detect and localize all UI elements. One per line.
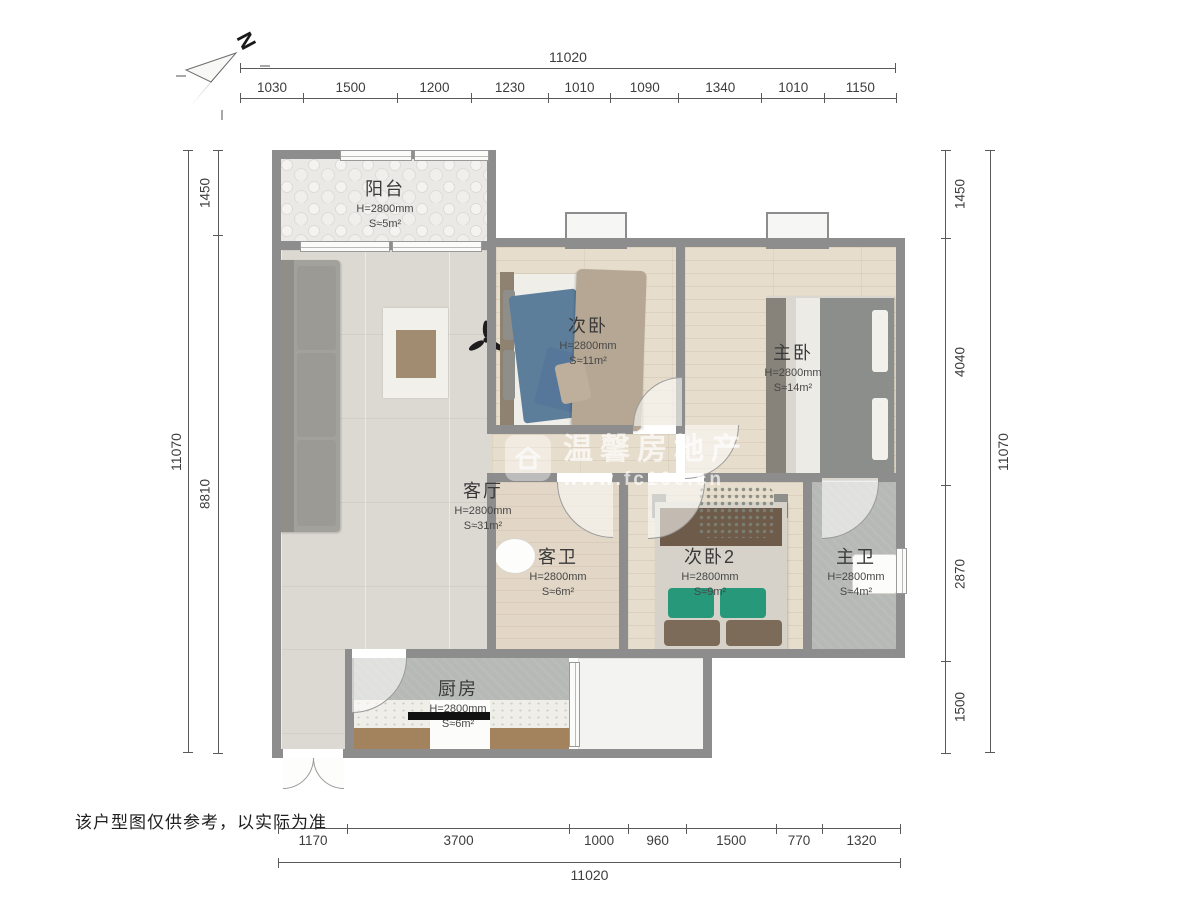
dimension-bottom-segments: 11703700100096015007701320 bbox=[278, 828, 901, 853]
wall-guestbath-bed3 bbox=[619, 482, 628, 649]
room-label-second-bedroom: 次卧 H=2800mm S≈11m² bbox=[559, 315, 616, 369]
dimension-segment: 1320 bbox=[822, 829, 901, 853]
room-label-second-bedroom-2: 次卧2 H=2800mm S≈9m² bbox=[681, 546, 738, 600]
dimension-top-total: 11020 bbox=[240, 46, 896, 69]
utility-area-floor bbox=[578, 658, 705, 751]
dimension-segment: 1010 bbox=[762, 74, 825, 98]
wall-right bbox=[896, 238, 905, 658]
balcony-window bbox=[414, 150, 489, 161]
kitchen-stove-bar bbox=[408, 712, 490, 720]
house-icon bbox=[505, 435, 551, 481]
bed-pillow bbox=[503, 350, 515, 400]
wall-mid-divider-d bbox=[878, 473, 905, 482]
coffee-table bbox=[396, 330, 436, 378]
dimension-segment: 1340 bbox=[679, 74, 762, 98]
dimension-left-segments: 14508810 bbox=[194, 150, 219, 753]
entry-door-left bbox=[283, 758, 314, 789]
dimension-segment: 1500 bbox=[686, 829, 776, 853]
dimension-right-segments: 1450404028701500 bbox=[945, 150, 970, 753]
wall-bed3-masterbath bbox=[803, 482, 812, 649]
plant-decor bbox=[698, 486, 774, 538]
dimension-segment: 8810 bbox=[194, 235, 218, 753]
dimension-segment: 770 bbox=[776, 829, 822, 853]
dimension-segment: 1010 bbox=[548, 74, 611, 98]
dimension-segment: 2870 bbox=[946, 486, 970, 662]
balcony-inner-window bbox=[392, 241, 482, 252]
dimension-segment: 3700 bbox=[348, 829, 569, 853]
dimension-segment: 1090 bbox=[611, 74, 679, 98]
bed3-pillow-brown bbox=[664, 620, 720, 646]
dimension-segment: 1230 bbox=[472, 74, 548, 98]
dimension-right-total: 11070 bbox=[990, 150, 991, 753]
dimension-segment: 1450 bbox=[946, 150, 970, 239]
wall-utility-right bbox=[703, 658, 712, 758]
room-label-master-bathroom: 主卫 H=2800mm S≈4m² bbox=[827, 546, 884, 600]
wall-bottom-b bbox=[343, 749, 712, 758]
kitchen-window bbox=[569, 662, 580, 747]
floor-plan-canvas: 阳台 H=2800mm S≈5m² 次卧 H=2800mm S≈11m² 主卧 … bbox=[0, 0, 1200, 900]
master-bathroom-window bbox=[896, 548, 907, 594]
balcony-window bbox=[340, 150, 412, 161]
wall-lower-row-a bbox=[345, 649, 352, 658]
sofa-cushion bbox=[297, 353, 336, 437]
dimension-segment: 1500 bbox=[304, 74, 397, 98]
disclaimer-text: 该户型图仅供参考，以实际为准 bbox=[75, 808, 327, 833]
dimension-segment: 1500 bbox=[946, 661, 970, 753]
wall-lower-row-b bbox=[406, 649, 905, 658]
master-bed-pillow bbox=[872, 398, 888, 460]
wall-bottom-a bbox=[272, 749, 283, 758]
watermark-url: www.fc100.cn bbox=[563, 469, 748, 491]
dimension-segment: 1150 bbox=[825, 74, 896, 98]
wall-bedroom2-left-upper bbox=[487, 247, 496, 434]
bed3-pillow-brown bbox=[726, 620, 782, 646]
dimension-segment: 1450 bbox=[194, 150, 218, 235]
watermark-brand: 温馨房地产 bbox=[563, 424, 748, 468]
sofa-cushion bbox=[297, 266, 336, 350]
room-label-master-bedroom: 主卧 H=2800mm S≈14m² bbox=[764, 342, 821, 396]
room-label-balcony: 阳台 H=2800mm S≈5m² bbox=[356, 178, 413, 232]
entry-door-right bbox=[313, 758, 344, 789]
watermark: 温馨房地产 www.fc100.cn bbox=[505, 424, 748, 491]
dimension-segment: 960 bbox=[629, 829, 686, 853]
room-label-kitchen: 厨房 H=2800mm S≈6m² bbox=[429, 678, 486, 732]
dimension-bottom-total: 11020 bbox=[278, 862, 901, 885]
room-label-guest-bathroom: 客卫 H=2800mm S≈6m² bbox=[529, 546, 586, 600]
entry-floor bbox=[281, 649, 345, 749]
wall-bedrooms-top bbox=[487, 238, 905, 247]
master-bed-pillow bbox=[872, 310, 888, 372]
dimension-segment: 1000 bbox=[569, 829, 629, 853]
dimension-segment: 4040 bbox=[946, 239, 970, 486]
north-compass: N bbox=[176, 26, 271, 126]
dimension-segment: 1200 bbox=[397, 74, 472, 98]
room-label-living-room: 客厅 H=2800mm S≈31m² bbox=[454, 480, 511, 534]
dimension-top-segments: 103015001200123010101090134010101150 bbox=[240, 74, 896, 99]
balcony-inner-window bbox=[300, 241, 390, 252]
dimension-left-total: 11070 bbox=[188, 150, 189, 753]
sofa-cushion bbox=[297, 440, 336, 526]
wall-balcony-right bbox=[487, 150, 496, 250]
